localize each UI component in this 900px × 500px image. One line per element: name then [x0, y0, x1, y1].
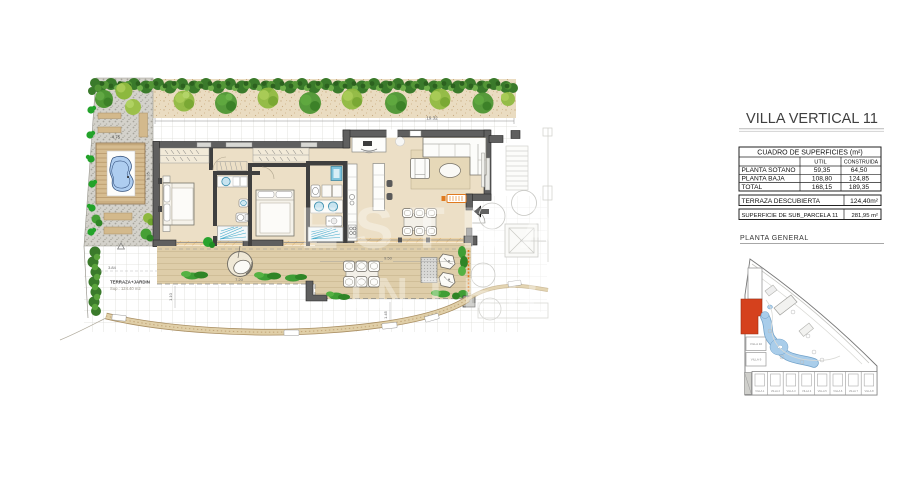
svg-text:UTIL: UTIL	[814, 160, 827, 166]
svg-text:Sup.: 124.40 m2: Sup.: 124.40 m2	[110, 286, 141, 291]
svg-text:INTERNA: INTERNA	[350, 269, 644, 318]
svg-text:VILLA 1: VILLA 1	[755, 389, 765, 393]
svg-text:59,35: 59,35	[814, 167, 831, 174]
svg-text:VILLA 4: VILLA 4	[802, 389, 812, 393]
svg-text:189,35: 189,35	[849, 184, 870, 191]
svg-text:PLANTA GENERAL: PLANTA GENERAL	[740, 235, 809, 242]
svg-text:VILLA 7: VILLA 7	[849, 389, 859, 393]
svg-text:VILLA 10: VILLA 10	[750, 342, 763, 346]
svg-text:VILLA 2: VILLA 2	[771, 389, 781, 393]
svg-text:VILLA 3: VILLA 3	[786, 389, 796, 393]
svg-text:PLANTA BAJA: PLANTA BAJA	[742, 176, 786, 183]
svg-text:168,15: 168,15	[812, 184, 833, 191]
svg-text:CUADRO DE SUPERFICIES (m²): CUADRO DE SUPERFICIES (m²)	[757, 150, 862, 157]
svg-text:ESTRAT: ESTRAT	[300, 196, 624, 261]
svg-text:108,80: 108,80	[812, 176, 833, 183]
svg-text:4.75: 4.75	[112, 135, 121, 140]
svg-text:VILLA 9: VILLA 9	[751, 358, 762, 362]
svg-text:281,95 m²: 281,95 m²	[851, 213, 878, 219]
svg-text:7.20: 7.20	[235, 277, 244, 282]
svg-text:VILLA 8: VILLA 8	[864, 389, 874, 393]
svg-text:CONSTRUIDA: CONSTRUIDA	[844, 160, 879, 166]
svg-text:TERRAZA DESCUBIERTA: TERRAZA DESCUBIERTA	[742, 198, 821, 205]
svg-text:SUPERFICIE DE SUB_PARCELA 11: SUPERFICIE DE SUB_PARCELA 11	[742, 213, 839, 219]
svg-text:TOTAL: TOTAL	[742, 184, 763, 191]
svg-text:VILLA 5: VILLA 5	[818, 389, 828, 393]
svg-text:VILLA VERTICAL 11: VILLA VERTICAL 11	[746, 111, 878, 127]
svg-text:VILLA 6: VILLA 6	[833, 389, 843, 393]
svg-text:124,40m²: 124,40m²	[850, 198, 879, 205]
svg-text:3.84: 3.84	[108, 265, 117, 270]
svg-text:19.32: 19.32	[426, 116, 438, 121]
svg-text:64,50: 64,50	[851, 167, 868, 174]
svg-text:PLANTA SOTANO: PLANTA SOTANO	[742, 167, 796, 174]
svg-text:TERRAZA+JARDIN: TERRAZA+JARDIN	[110, 280, 150, 285]
svg-text:8.35: 8.35	[146, 171, 151, 180]
svg-text:124,85: 124,85	[849, 176, 870, 183]
svg-text:1.10: 1.10	[168, 292, 173, 301]
